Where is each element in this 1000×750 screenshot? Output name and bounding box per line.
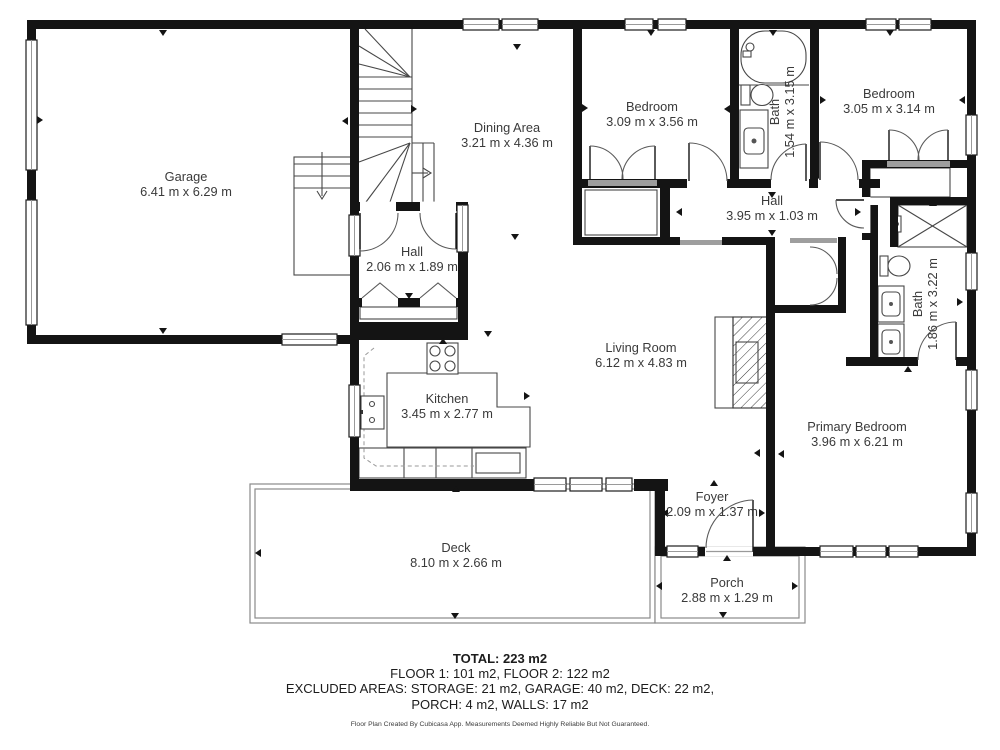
total-area: TOTAL: 223 m2 (0, 651, 1000, 666)
floor-plan-page: Garage6.41 m x 6.29 m Dining Area3.21 m … (0, 0, 1000, 750)
room-label-bedroom-2: Bedroom3.05 m x 3.14 m (843, 86, 935, 116)
room-label-deck: Deck8.10 m x 2.66 m (410, 540, 502, 570)
room-label-hall: Hall3.95 m x 1.03 m (726, 193, 818, 223)
shower-icon (893, 205, 967, 247)
disclaimer: Floor Plan Created By Cubicasa App. Meas… (0, 720, 1000, 729)
stove-icon (427, 343, 458, 374)
excluded-areas-1: EXCLUDED AREAS: STORAGE: 21 m2, GARAGE: … (0, 681, 1000, 696)
room-label-hall-small: Hall2.06 m x 1.89 m (366, 244, 458, 274)
room-label-bath-1: Bath1.54 m x 3.15 m (767, 66, 797, 158)
toilet-icon (880, 256, 910, 276)
room-label-foyer: Foyer2.09 m x 1.37 m (666, 489, 758, 519)
bathroom-vanity-icon (878, 286, 904, 360)
room-label-dining-area: Dining Area3.21 m x 4.36 m (461, 120, 553, 150)
room-label-living-room: Living Room6.12 m x 4.83 m (595, 340, 687, 370)
room-label-bedroom-1: Bedroom3.09 m x 3.56 m (606, 99, 698, 129)
staircase-icon (359, 29, 434, 202)
room-label-porch: Porch2.88 m x 1.29 m (681, 575, 773, 605)
area-summary: TOTAL: 223 m2 FLOOR 1: 101 m2, FLOOR 2: … (0, 651, 1000, 729)
bathroom-vanity-icon (740, 110, 768, 168)
room-label-kitchen: Kitchen3.45 m x 2.77 m (401, 391, 493, 421)
excluded-areas-2: PORCH: 4 m2, WALLS: 17 m2 (0, 697, 1000, 712)
fireplace-icon (715, 317, 767, 408)
room-label-bath-2: Bath1.86 m x 3.22 m (910, 258, 940, 350)
room-label-garage: Garage6.41 m x 6.29 m (140, 169, 232, 199)
garage-steps-icon (294, 152, 352, 275)
floor-areas: FLOOR 1: 101 m2, FLOOR 2: 122 m2 (0, 666, 1000, 681)
room-label-primary-bedroom: Primary Bedroom3.96 m x 6.21 m (807, 419, 907, 449)
